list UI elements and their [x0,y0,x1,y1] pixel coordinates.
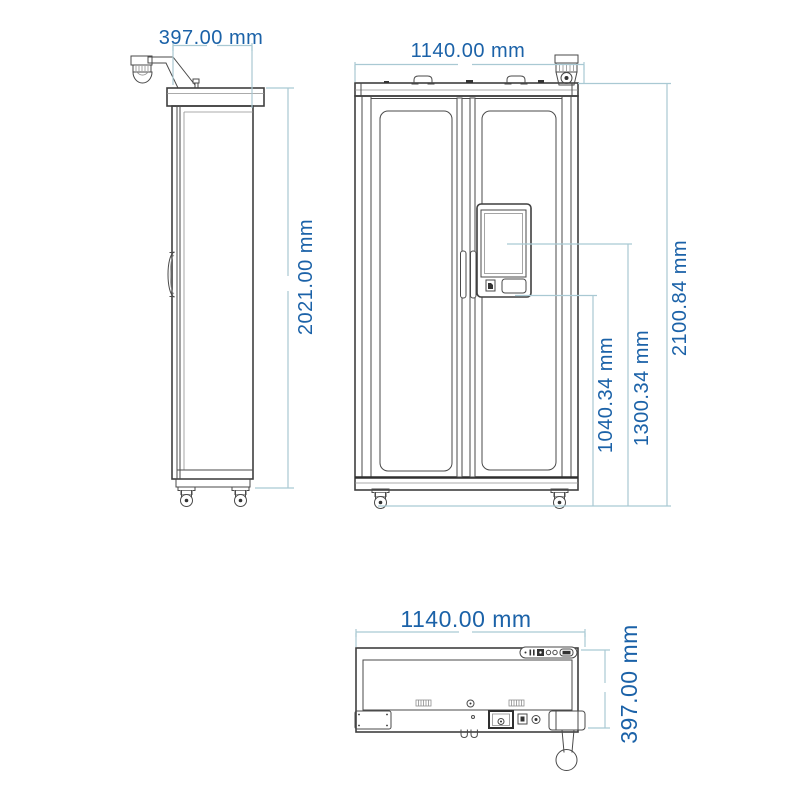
usb-port-icon [530,650,532,656]
right-door-handle [471,251,477,298]
cable-clip [471,730,477,738]
power-switch [518,714,527,724]
side-view [131,56,264,507]
mounting-plate [355,711,391,729]
front-view [355,55,578,509]
cable-clip [461,730,467,738]
overall-height-dimension-label: 2100.84 mm [669,240,691,356]
dome-camera-front-icon [555,55,578,85]
camera-dome [133,72,152,83]
panel-bottom-height-dimension-label: 1040.34 mm [595,337,617,453]
side-view-height-dimension-label: 2021.00 mm [295,219,317,335]
connector-panel [520,647,577,658]
screw-hole [472,716,475,719]
camera-vent-band [133,65,151,72]
dome-camera-side-icon [131,56,195,88]
drawing-canvas: 397.00 mm 2021.00 mm [0,0,800,800]
caster-wheel [232,487,249,507]
bottom-view [355,647,585,771]
center-fitting [467,700,474,707]
cabinet-technical-drawing: 397.00 mm 2021.00 mm [0,0,800,800]
usb-port-icon [533,650,535,656]
bottom-view-depth-dimension-label: 397.00 mm [616,624,642,744]
left-door-handle [461,251,467,298]
bottom-body [356,648,578,732]
side-view-depth-dimension-label: 397.00 mm [159,27,264,49]
camera-arm-top-view [549,711,585,771]
side-top-cap [167,88,264,106]
mounting-plate [549,711,585,730]
front-view-width-dimension-label: 1140.00 mm [411,40,526,62]
roof-fitting [538,80,544,83]
side-view-dimensions: 397.00 mm 2021.00 mm [159,27,317,488]
side-body [172,106,253,487]
round-connector [532,716,540,724]
caster-wheel [178,487,195,507]
vent-slot [509,700,524,706]
roof-bolt [193,79,199,88]
bottom-view-width-dimension-label: 1140.00 mm [400,606,531,632]
left-door-window [380,111,452,471]
side-door-handle [168,252,174,297]
side-base-plinth [176,479,250,487]
power-inlet [489,711,513,728]
vent-slot [416,700,431,706]
camera-dome-top [556,750,577,771]
front-top-cap [355,80,578,96]
touchscreen-panel [477,204,531,297]
screen-center-height-dimension-label: 1300.34 mm [631,330,653,446]
roof-fitting [466,80,473,83]
